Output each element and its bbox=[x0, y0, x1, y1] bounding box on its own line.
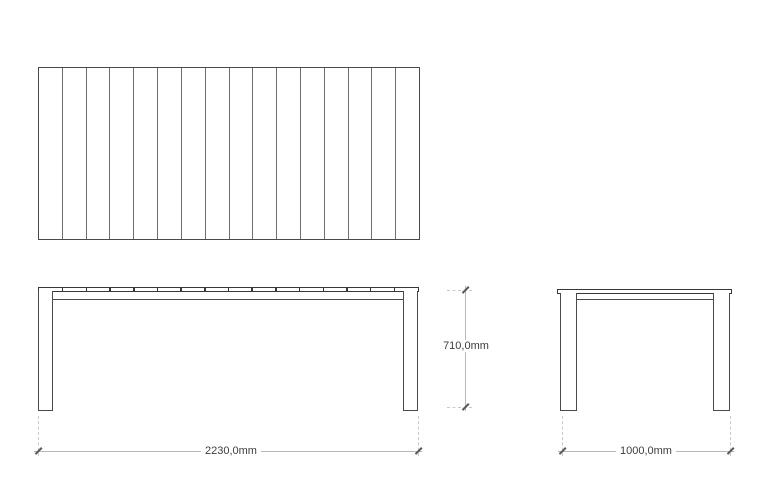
table-slat bbox=[277, 68, 301, 239]
front-tabletop bbox=[38, 287, 419, 292]
slat-gap-tick bbox=[275, 287, 277, 293]
height-extension-line-top bbox=[447, 290, 472, 291]
height-extension-line-bottom bbox=[447, 407, 472, 408]
front-right-leg bbox=[403, 291, 418, 411]
slat-gap-tick bbox=[370, 287, 372, 293]
table-slat bbox=[253, 68, 277, 239]
table-slat bbox=[134, 68, 158, 239]
slat-gap-tick bbox=[228, 287, 230, 293]
width-dimension-label: 2230,0mm bbox=[36, 445, 426, 457]
table-slat bbox=[158, 68, 182, 239]
height-dimension-value: 710,0mm bbox=[439, 340, 493, 352]
slat-gap-tick bbox=[109, 287, 111, 293]
table-slat bbox=[182, 68, 206, 239]
table-slat bbox=[396, 68, 419, 239]
top-view bbox=[38, 67, 420, 240]
table-slat bbox=[110, 68, 134, 239]
table-slat bbox=[372, 68, 396, 239]
table-slat bbox=[87, 68, 111, 239]
height-dimension-label: 710,0mm bbox=[438, 340, 494, 352]
width-dimension-value: 2230,0mm bbox=[201, 445, 261, 457]
slat-gap-tick bbox=[346, 287, 348, 293]
slat-gap-tick bbox=[180, 287, 182, 293]
depth-dimension-value: 1000,0mm bbox=[616, 445, 676, 457]
slat-gap-tick bbox=[62, 287, 64, 293]
slat-gap-tick bbox=[299, 287, 301, 293]
slat-gap-tick bbox=[204, 287, 206, 293]
depth-dimension-label: 1000,0mm bbox=[558, 445, 734, 457]
side-left-leg bbox=[560, 293, 577, 411]
slat-gap-tick bbox=[86, 287, 88, 293]
table-slat bbox=[39, 68, 63, 239]
slat-gap-tick bbox=[251, 287, 253, 293]
side-apron-line bbox=[577, 299, 713, 300]
table-slat bbox=[230, 68, 254, 239]
table-slat bbox=[63, 68, 87, 239]
side-tabletop bbox=[557, 289, 732, 294]
front-apron-line bbox=[53, 299, 403, 300]
table-slat bbox=[206, 68, 230, 239]
slat-gap-tick bbox=[323, 287, 325, 293]
table-slat bbox=[349, 68, 373, 239]
table-slat bbox=[301, 68, 325, 239]
table-slat bbox=[325, 68, 349, 239]
front-left-leg bbox=[38, 291, 53, 411]
slat-gap-tick bbox=[133, 287, 135, 293]
drawing-canvas: 2230,0mm 710,0mm 1000,0mm bbox=[0, 0, 760, 500]
side-right-leg bbox=[713, 293, 730, 411]
slat-gap-tick bbox=[394, 287, 396, 293]
slat-gap-tick bbox=[157, 287, 159, 293]
